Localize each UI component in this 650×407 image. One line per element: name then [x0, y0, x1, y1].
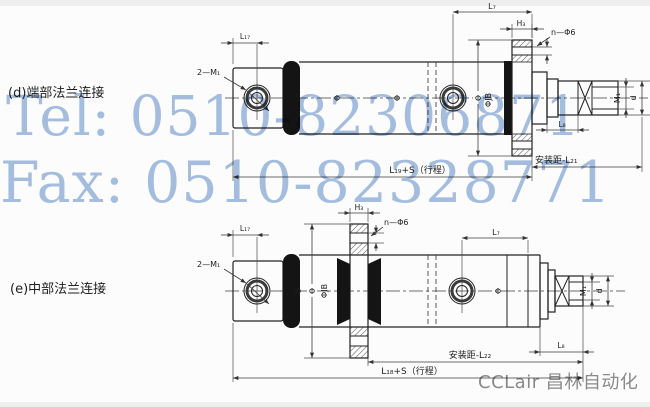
fig-e-label-stroke: L₁₈+S（行程） — [381, 365, 442, 377]
fig-e-flange-seal-left — [337, 258, 350, 325]
fig-e-label-flange-dia: ΦJB — [320, 284, 329, 298]
catalog-drawing-page: (d)端部法兰连接 — [0, 0, 650, 407]
technical-drawing: (d)端部法兰连接 — [0, 0, 650, 407]
fig-e-label-mount-distance: 安装距-L₂₂ — [449, 349, 492, 361]
fig-e-label-l7: L₇ — [492, 228, 500, 237]
figure-e-mid-flange: (e)中部法兰连接 — [10, 203, 625, 382]
fig-e-dia-symbol: Φ — [295, 287, 301, 296]
fig-d-dia-symbol: Φ — [475, 94, 481, 103]
figure-d-end-flange: (d)端部法兰连接 — [8, 2, 650, 181]
fig-d-label-flange-dia: ΦJB — [484, 93, 493, 107]
fig-d-label-stroke: L₁₉+S（行程） — [389, 164, 450, 176]
fig-d-label-rod-thread: M₁ — [613, 93, 622, 103]
figure-e-caption-text: (e)中部法兰连接 — [10, 281, 106, 297]
fig-d-label-l8: L₈ — [558, 120, 565, 129]
fig-e-label-l17: L₁₇ — [240, 224, 250, 233]
fig-e-dia-symbol: Φ — [309, 287, 315, 296]
fig-e-label-rod-thread: M₁ — [579, 286, 588, 296]
fig-d-flange-seal-band — [504, 61, 512, 135]
fig-e-label-bolt-holes: n—Φ6 — [384, 218, 408, 227]
fig-d-label-h3: H₃ — [517, 19, 526, 28]
fig-d-label-l7: L₇ — [488, 2, 496, 11]
fig-d-label-mount-distance: 安装距-L₂₁ — [535, 154, 578, 166]
fig-e-flange-seal-right — [368, 258, 381, 325]
fig-e-label-rod-dia: d — [595, 288, 604, 293]
fig-e-label-h3: H₃ — [355, 203, 364, 212]
fig-e-label-l8: L₈ — [557, 341, 564, 350]
fig-d-label-bolt-holes: n—Φ6 — [551, 28, 575, 37]
figure-d-caption-text: (d)端部法兰连接 — [8, 85, 104, 101]
fig-e-label-port-thread: 2—M₁ — [197, 260, 220, 269]
fig-d-label-l17: L₁₇ — [240, 32, 250, 41]
fig-d-label-rod-dia: d — [629, 95, 638, 100]
fig-d-label-port-thread: 2—M₁ — [197, 68, 220, 77]
fig-e-dimensions: 2—M₁ L₁₇ H₃ n—Φ6 — [197, 203, 614, 382]
fig-d-dia-symbol: Φ — [394, 94, 400, 103]
fig-d-dia-symbol: Φ — [334, 94, 340, 103]
fig-d-seal-band — [283, 61, 300, 135]
fig-e-dia-symbol: Φ — [495, 287, 501, 296]
